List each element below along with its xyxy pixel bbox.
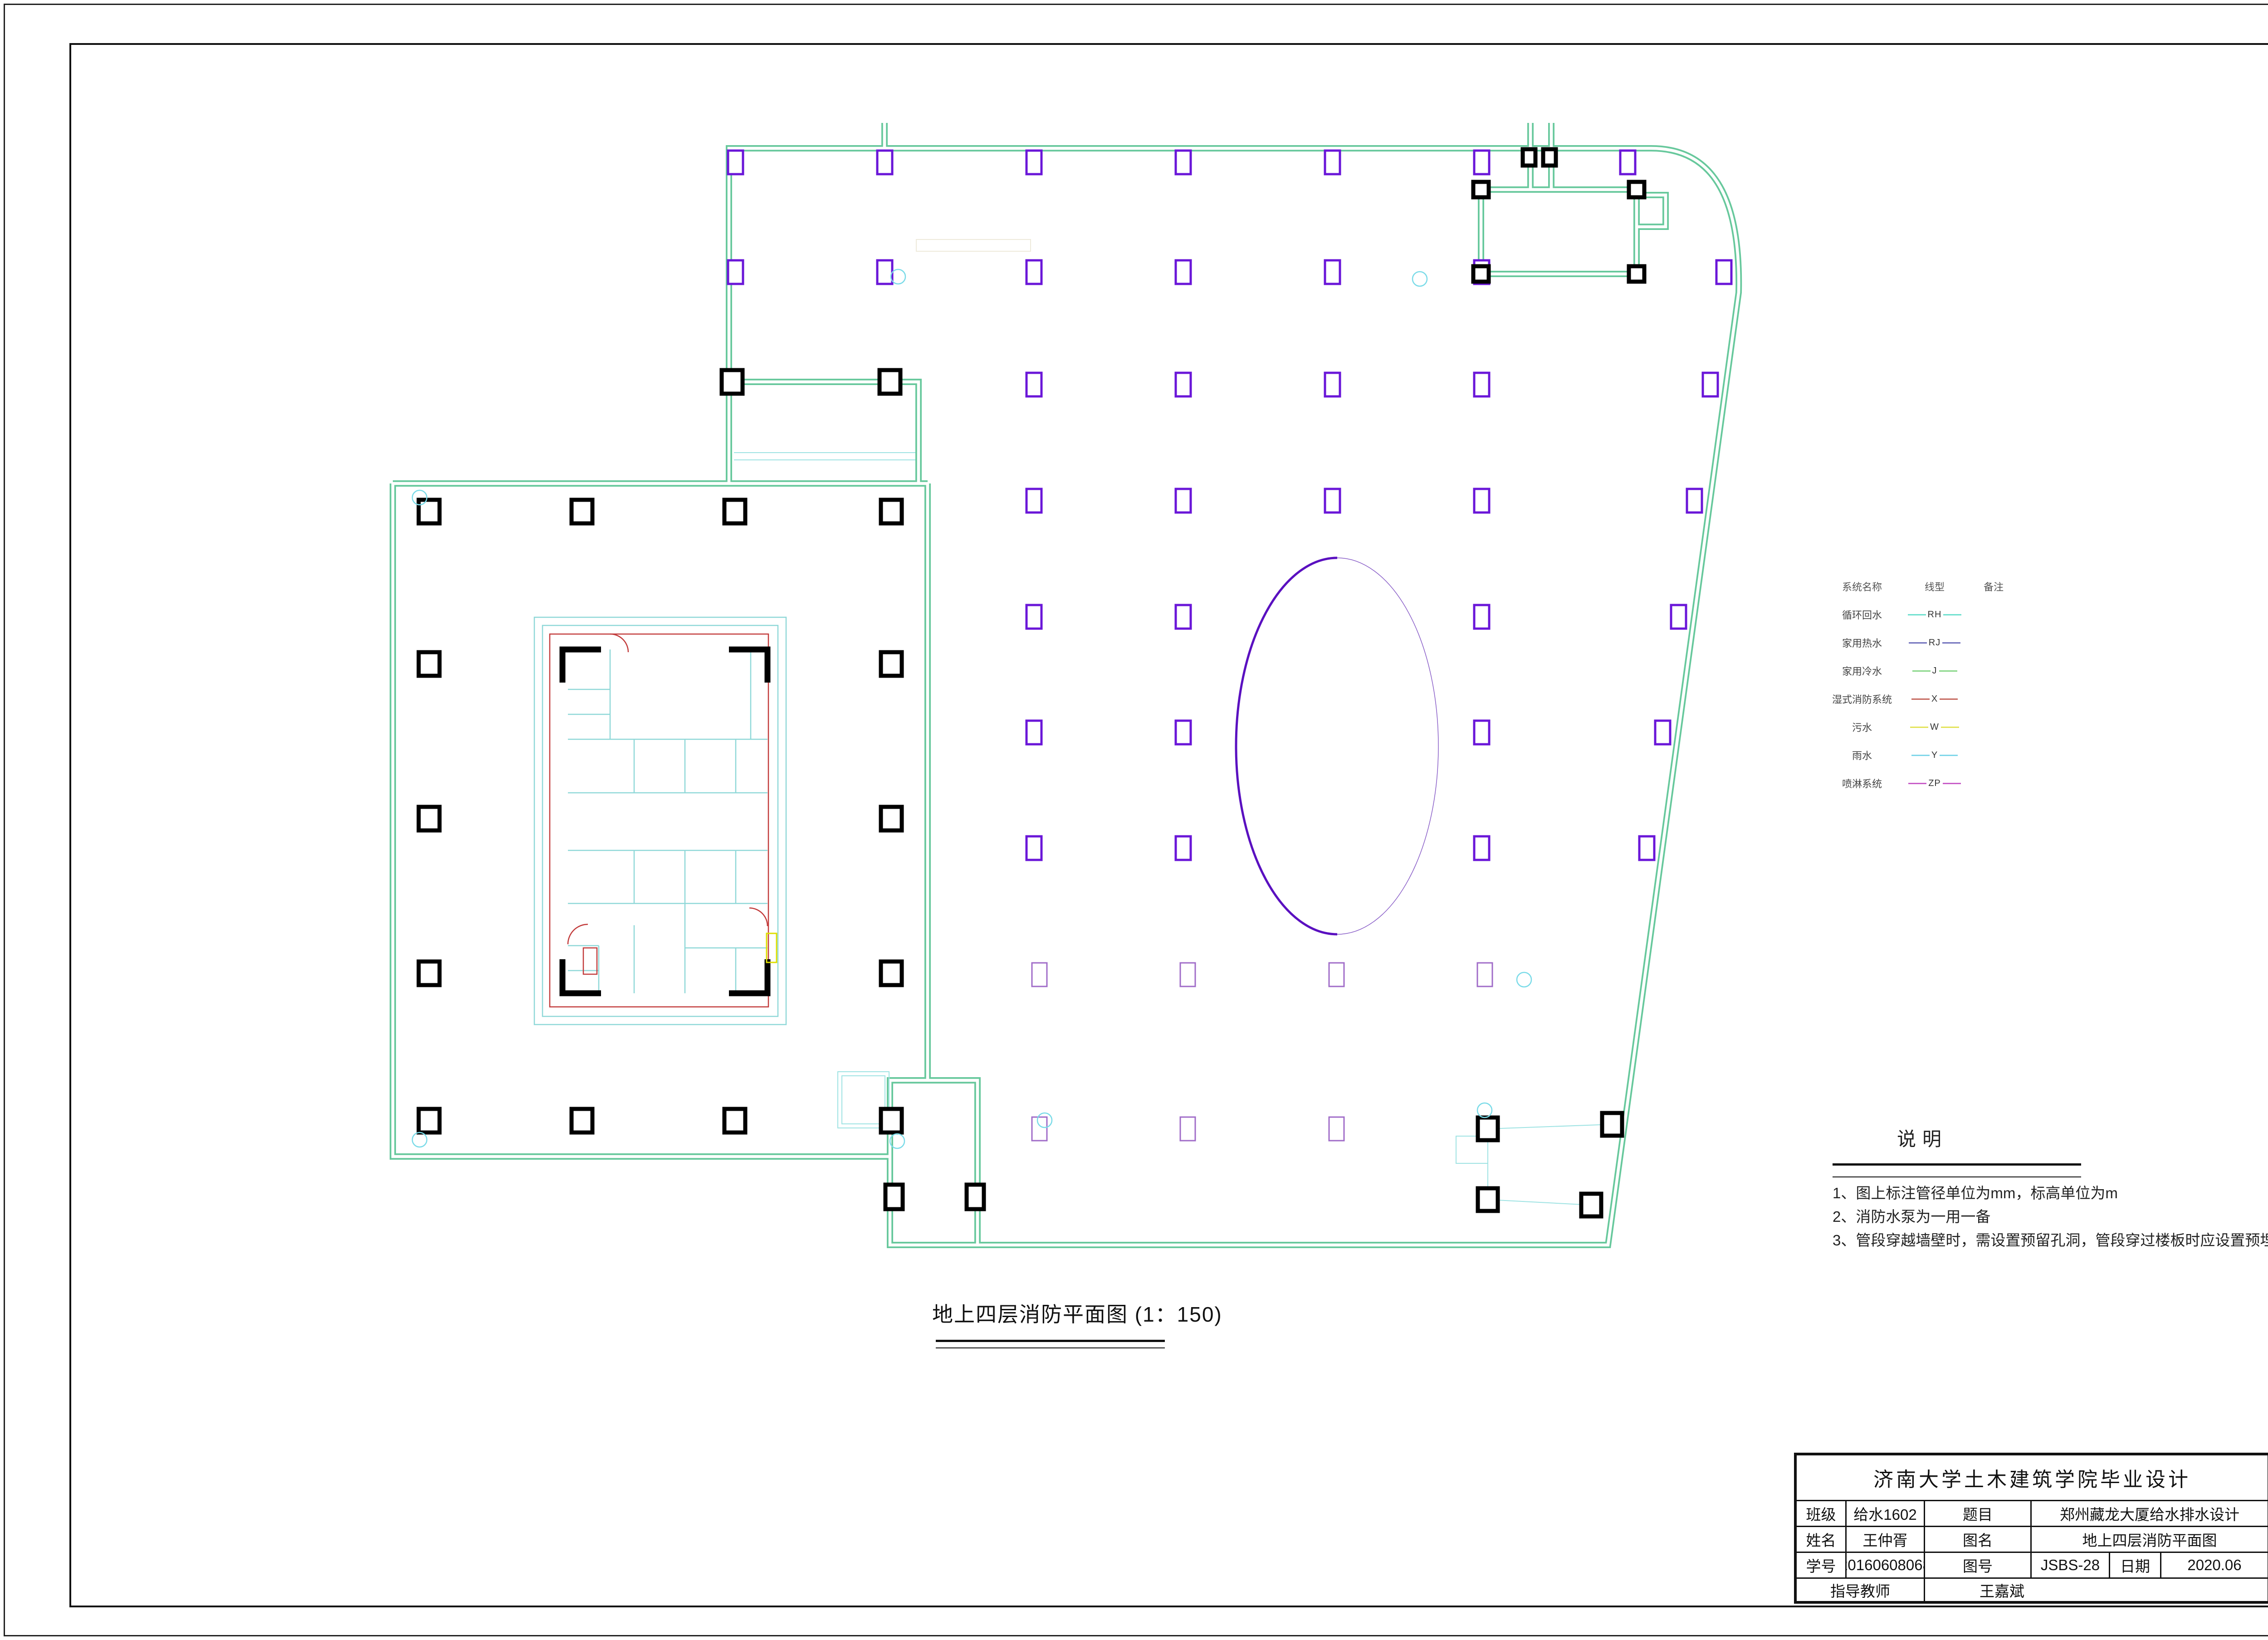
stuid-value: 20160608068 <box>1847 1553 1925 1579</box>
legend-line-segment <box>1911 755 1930 756</box>
core-corner-column <box>729 649 767 683</box>
legend-header-line: 线型 <box>1903 579 1966 594</box>
note-item: 1、图上标注管径单位为mm，标高单位为m <box>1833 1186 2177 1201</box>
legend-line-segment <box>1912 670 1931 672</box>
legend-line-segment <box>1943 783 1961 784</box>
column-grid-purple <box>728 151 1731 860</box>
advisor-value: 王嘉斌 <box>1925 1579 2268 1601</box>
figname-label: 图名 <box>1925 1527 2032 1553</box>
figname-value: 地上四层消防平面图 <box>2032 1527 2268 1553</box>
legend-table: 系统名称 线型 备注 循环回水RH家用热水RJ家用冷水J湿式消防系统X污水W雨水… <box>1821 572 2021 797</box>
plan-caption: 地上四层消防平面图 (1：150) <box>932 1298 1168 1348</box>
date-label: 日期 <box>2110 1553 2161 1579</box>
legend-row: 湿式消防系统X <box>1821 685 2021 713</box>
core-corner-column <box>562 959 601 993</box>
name-value: 王仲胥 <box>1847 1527 1925 1553</box>
legend-row-name: 家用冷水 <box>1821 664 1903 678</box>
legend-line-swatch: RH <box>1903 610 1966 620</box>
floor-plan-svg <box>0 0 2268 1640</box>
legend-row: 家用热水RJ <box>1821 629 2021 657</box>
caption-underline-thick <box>936 1340 1165 1342</box>
legend-row-code: ZP <box>1928 778 1941 789</box>
legend-row-code: W <box>1930 722 1939 732</box>
legend-header-remark: 备注 <box>1966 579 2021 594</box>
caption-underline-thin <box>936 1347 1165 1348</box>
legend-row-code: RH <box>1928 610 1942 620</box>
legend-line-swatch: X <box>1903 694 1966 704</box>
legend-row-name: 喷淋系统 <box>1821 776 1903 791</box>
topic-value: 郑州藏龙大厦给水排水设计 <box>2032 1501 2268 1527</box>
legend-line-segment <box>1940 698 1958 700</box>
legend-line-swatch: Y <box>1903 750 1966 761</box>
legend-line-segment <box>1943 614 1961 615</box>
legend-row-code: X <box>1931 694 1938 704</box>
core-door-arcs <box>568 634 767 944</box>
legend-row-code: RJ <box>1929 638 1941 648</box>
legend-row: 喷淋系统ZP <box>1821 769 2021 797</box>
black-columns <box>419 149 1644 1216</box>
notes-block: 说明 1、图上标注管径单位为mm，标高单位为m2、消防水泵为一用一备3、管段穿越… <box>1833 1124 2177 1248</box>
title-block: 济南大学土木建筑学院毕业设计 班级 给水1602 题目 郑州藏龙大厦给水排水设计… <box>1794 1453 2268 1604</box>
atrium-ellipse <box>1236 558 1438 934</box>
name-label: 姓名 <box>1797 1527 1847 1553</box>
walls-layer <box>393 123 1739 1245</box>
titleblock-header: 济南大学土木建筑学院毕业设计 <box>1797 1455 2268 1501</box>
legend-line-segment <box>1908 783 1926 784</box>
core-partitions <box>568 649 767 993</box>
legend-line-segment <box>1939 670 1957 672</box>
legend-line-swatch: RJ <box>1903 638 1966 648</box>
advisor-label: 指导教师 <box>1797 1579 1925 1601</box>
core <box>534 617 786 1025</box>
legend-row-name: 雨水 <box>1821 748 1903 762</box>
legend-row-code: Y <box>1931 750 1938 761</box>
core-corner-column <box>729 959 767 993</box>
legend-line-swatch: W <box>1903 722 1966 732</box>
class-label: 班级 <box>1797 1501 1847 1527</box>
legend-line-segment <box>1910 727 1928 728</box>
legend-line-segment <box>1941 727 1959 728</box>
legend-line-segment <box>1942 642 1960 644</box>
notes-underline-thick <box>1833 1163 2081 1166</box>
note-item: 2、消防水泵为一用一备 <box>1833 1209 2177 1225</box>
legend-row-name: 湿式消防系统 <box>1821 692 1903 706</box>
plan-caption-text: 地上四层消防平面图 (1：150) <box>932 1298 1168 1328</box>
legend-line-segment <box>1908 614 1926 615</box>
legend-row-name: 循环回水 <box>1821 607 1903 622</box>
legend-line-segment <box>1911 698 1930 700</box>
topic-label: 题目 <box>1925 1501 2032 1527</box>
legend-line-segment <box>1909 642 1927 644</box>
legend-row-name: 家用热水 <box>1821 635 1903 650</box>
legend-row-code: J <box>1932 666 1937 676</box>
legend-line-swatch: ZP <box>1903 778 1966 789</box>
bridge-stair-lines <box>734 453 915 460</box>
legend-header: 系统名称 线型 备注 <box>1821 572 2021 600</box>
cad-drawing-page: { "plan": { "caption": "地上四层消防平面图 (1：150… <box>0 0 2268 1640</box>
notes-underline-thin <box>1833 1176 2081 1177</box>
date-value: 2020.06 <box>2161 1553 2268 1579</box>
legend-header-name: 系统名称 <box>1821 579 1903 594</box>
column-grid-light <box>1032 963 1492 1141</box>
faint-fixture <box>916 239 1031 251</box>
legend-row-name: 污水 <box>1821 720 1903 734</box>
figno-value: JSBS-28 <box>2032 1553 2110 1579</box>
notes-list: 1、图上标注管径单位为mm，标高单位为m2、消防水泵为一用一备3、管段穿越墙壁时… <box>1833 1186 2177 1248</box>
notes-title: 说明 <box>1897 1124 2177 1152</box>
legend-row: 家用冷水J <box>1821 657 2021 685</box>
figno-label: 图号 <box>1925 1553 2032 1579</box>
stuid-label: 学号 <box>1797 1553 1847 1579</box>
note-item: 3、管段穿越墙壁时，需设置预留孔洞，管段穿过楼板时应设置预埋金属管套 <box>1833 1233 2177 1248</box>
class-value: 给水1602 <box>1847 1501 1925 1527</box>
legend-row: 雨水Y <box>1821 741 2021 769</box>
legend-line-segment <box>1940 755 1958 756</box>
legend-row: 污水W <box>1821 713 2021 741</box>
legend-line-swatch: J <box>1903 666 1966 676</box>
legend-row: 循环回水RH <box>1821 600 2021 629</box>
core-corner-column <box>562 649 601 683</box>
